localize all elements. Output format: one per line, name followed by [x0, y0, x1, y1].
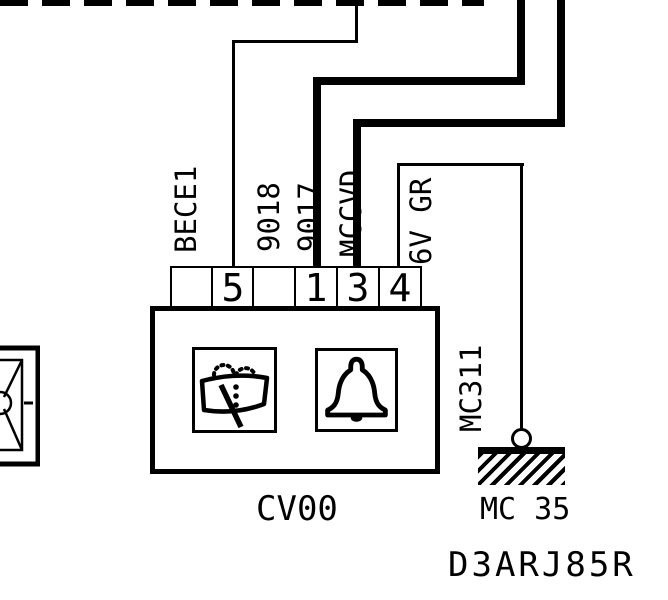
wire-9018-drop [517, 0, 525, 85]
wire-label-mc311: MC311 [456, 345, 486, 432]
sheet-reference-code: D3ARJ85R [448, 548, 636, 582]
ground-hatch [478, 454, 565, 485]
pin-cell-3: 3 [336, 266, 380, 308]
pin-cell-blank-2 [252, 266, 296, 308]
wire-bece1-horizontal [232, 40, 358, 43]
ground-id-label: MC 35 [480, 495, 570, 525]
pin-cell-4: 4 [378, 266, 422, 308]
wiper-washer-icon-box [192, 347, 277, 433]
wire-mccvd-vertical [397, 164, 400, 267]
wiring-diagram-canvas: BECE1 9018 9017 MCCVD 6V GR MC311 4V NR … [0, 0, 668, 600]
wire-ground-vertical [520, 163, 523, 431]
wire-9017-drop [557, 0, 565, 127]
pin-cell-5: 5 [211, 266, 255, 308]
wire-label-9017: 9017 [294, 182, 324, 252]
wire-label-9018: 9018 [254, 182, 284, 252]
wire-9018-horizontal [313, 77, 525, 85]
pin-cell-blank-1 [170, 266, 214, 308]
ground-connection-node [511, 428, 532, 449]
wire-9017-horizontal [353, 119, 565, 127]
wire-bece1-vertical [232, 40, 235, 267]
pin-cell-1: 1 [294, 266, 338, 308]
wiper-washer-icon [195, 350, 274, 430]
wire-label-6v-gr: 6V GR [406, 178, 436, 265]
wire-label-mccvd: MCCVD [336, 170, 366, 257]
ground-bar [478, 447, 565, 454]
wire-mccvd-horizontal [397, 163, 524, 166]
wire-bece1-drop [355, 4, 358, 42]
component-id-label: CV00 [256, 492, 338, 526]
clipped-component-symbol [0, 345, 40, 467]
bell-horn-icon [318, 351, 395, 429]
bell-horn-icon-box [315, 348, 398, 432]
dashed-bus-line [0, 0, 484, 6]
wire-label-bece1: BECE1 [171, 166, 201, 253]
